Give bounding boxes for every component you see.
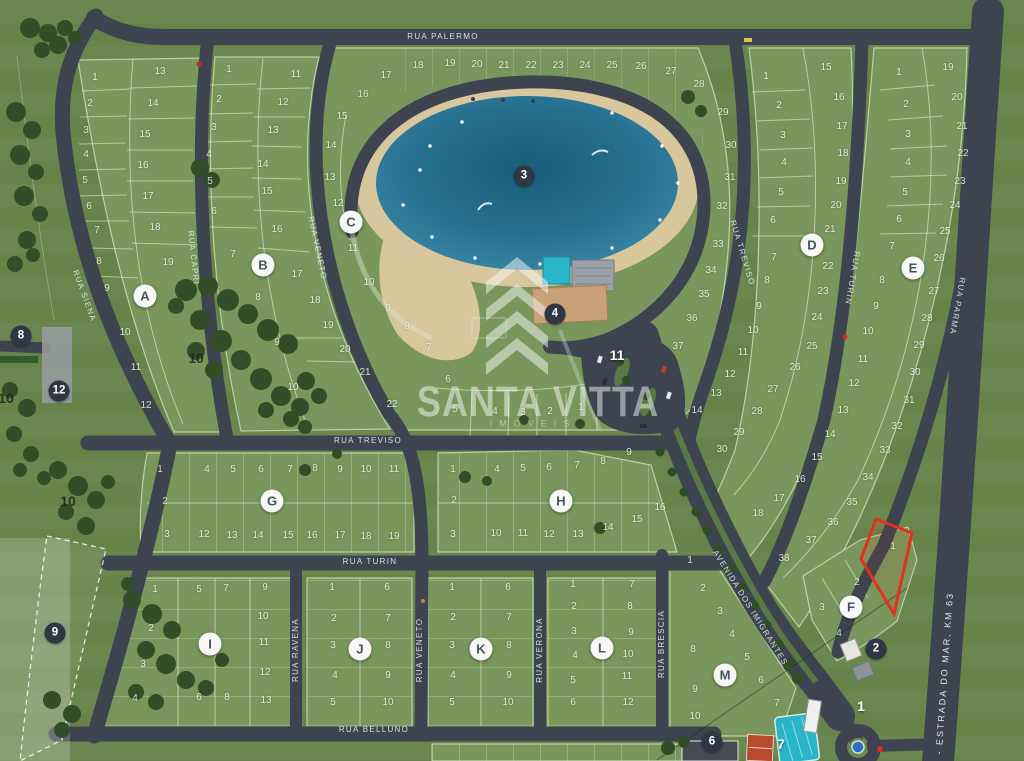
block-marker-M[interactable]: M	[714, 664, 737, 687]
lot-number: 6	[758, 676, 764, 686]
lot-number: 15	[820, 63, 831, 73]
lot-number: 4	[729, 630, 735, 640]
lot-number: 19	[388, 532, 399, 542]
lot-number: 11	[389, 465, 399, 475]
lot-number: 15	[282, 531, 293, 541]
lot-number: 10	[363, 278, 374, 288]
lot-number: 25	[806, 342, 817, 352]
poi-marker-7[interactable]: 7	[777, 737, 785, 751]
lot-number: 38	[778, 554, 789, 564]
lot-number: 7	[287, 465, 293, 475]
lot-number: 2	[148, 624, 154, 634]
lot-number: 5	[449, 698, 455, 708]
lot-number: 29	[733, 428, 744, 438]
lot-number: 1	[687, 556, 693, 566]
lot-number: 36	[686, 314, 697, 324]
lot-number: 10	[119, 328, 130, 338]
lot-number: 12	[277, 98, 288, 108]
lot-number: 11	[518, 529, 528, 539]
lot-number: 14	[824, 430, 835, 440]
lot-number: 3	[450, 530, 456, 540]
lot-number: 3	[520, 408, 526, 418]
lot-number: 4	[450, 671, 456, 681]
lot-number: 37	[672, 342, 683, 352]
lot-number: 5	[902, 188, 908, 198]
labels-layer: RUA PALERMORUA SIENARUA CAPRIRUA VENETOR…	[0, 0, 1024, 761]
lot-number: 9	[756, 302, 762, 312]
lot-number: 3	[571, 627, 577, 637]
lot-number: 18	[752, 509, 763, 519]
lot-number: 7	[223, 584, 229, 594]
block-marker-A[interactable]: A	[134, 285, 157, 308]
street-label: RUA PALERMO	[407, 33, 479, 41]
lot-number: 9	[506, 671, 512, 681]
lot-number: 28	[921, 314, 932, 324]
lot-number: 19	[322, 321, 333, 331]
lot-number: 8	[404, 322, 410, 332]
lot-number: 5	[82, 176, 88, 186]
lot-number: 31	[724, 173, 735, 183]
block-marker-B[interactable]: B	[252, 254, 275, 277]
lot-number: 12	[332, 199, 343, 209]
lot-number: 4	[83, 150, 89, 160]
lot-number: 17	[836, 122, 847, 132]
lot-number: 13	[324, 173, 335, 183]
lot-number: 12	[140, 401, 151, 411]
lot-number: 15	[631, 515, 642, 525]
lot-number: 20	[830, 201, 841, 211]
lot-number: 10	[689, 712, 700, 722]
lot-number: 24	[811, 313, 822, 323]
lot-number: 6	[258, 465, 264, 475]
lot-number: 1	[890, 542, 896, 552]
lot-number: 10	[490, 529, 501, 539]
lot-number: 2	[451, 496, 457, 506]
lot-number: 30	[909, 368, 920, 378]
lot-number: 17	[773, 494, 784, 504]
lot-number: 1	[449, 583, 455, 593]
lot-number: 22	[386, 400, 397, 410]
lot-number: 12	[622, 698, 633, 708]
poi-marker-1[interactable]: 1	[857, 699, 865, 713]
lot-number: 10	[287, 383, 298, 393]
street-label: RUA CAPRI	[186, 230, 200, 285]
lot-number: 30	[716, 445, 727, 455]
lot-number: 25	[939, 227, 950, 237]
lot-number: 17	[380, 71, 391, 81]
lot-number: 26	[789, 363, 800, 373]
lot-number: 11	[622, 672, 632, 682]
lot-number: 15	[139, 130, 150, 140]
lot-number: 6	[770, 216, 776, 226]
lot-number: 20	[951, 93, 962, 103]
lot-number: 22	[822, 262, 833, 272]
lot-number: 35	[698, 290, 709, 300]
lot-number: 1	[570, 580, 576, 590]
poi-marker-6[interactable]: 6	[702, 732, 723, 753]
lot-number: 5	[196, 585, 202, 595]
lot-number: 2	[162, 497, 168, 507]
lot-number: 2	[547, 407, 553, 417]
lot-number: 21	[498, 61, 509, 71]
lot-number: 9	[873, 302, 879, 312]
lot-number: 5	[452, 405, 458, 415]
lot-number: 19	[444, 59, 455, 69]
lot-number: 33	[712, 240, 723, 250]
street-label: RUA TURIN	[843, 250, 860, 305]
street-label: RUA VERONA	[536, 617, 544, 682]
lot-number: 25	[606, 61, 617, 71]
lot-number: 31	[903, 396, 914, 406]
lot-number: 32	[891, 422, 902, 432]
lot-number: 14	[252, 531, 263, 541]
lot-number: 4	[781, 158, 787, 168]
lot-number: 13	[837, 406, 848, 416]
lot-number: 16	[306, 531, 317, 541]
lot-number: 7	[94, 226, 100, 236]
block-marker-D[interactable]: D	[801, 234, 824, 257]
block-marker-L[interactable]: L	[591, 637, 614, 660]
block-marker-K[interactable]: K	[470, 638, 493, 661]
lot-number: 28	[751, 407, 762, 417]
lot-number: 21	[359, 368, 370, 378]
poi-marker-4[interactable]: 4	[545, 304, 566, 325]
lot-number: 5	[520, 464, 526, 474]
street-label: RUA VENETO	[416, 618, 424, 682]
lot-number: 4	[572, 651, 578, 661]
lot-number: 12	[198, 530, 209, 540]
lot-number: 1	[450, 465, 456, 475]
block-marker-C[interactable]: C	[340, 211, 363, 234]
lot-number: 17	[291, 270, 302, 280]
lot-number: 26	[933, 254, 944, 264]
lot-number: 18	[360, 532, 371, 542]
street-label: RUA PARMA	[948, 277, 966, 336]
lot-number: 5	[207, 177, 213, 187]
lot-number: 14	[147, 99, 158, 109]
lot-number: 7	[629, 580, 635, 590]
lot-number: 11	[348, 244, 358, 254]
lot-number: 23	[552, 61, 563, 71]
street-label: 389 - ESTRADA DO MAR, KM 63	[933, 592, 955, 761]
poi-marker-3[interactable]: 3	[514, 166, 535, 187]
lot-number: 27	[665, 67, 676, 77]
lot-number: 8	[385, 641, 391, 651]
lot-number: 9	[692, 685, 698, 695]
lot-number: 13	[154, 67, 165, 77]
lot-number: 24	[949, 201, 960, 211]
lot-number: 34	[862, 473, 873, 483]
lot-number: 7	[774, 699, 780, 709]
lot-number: 6	[211, 207, 217, 217]
lot-number: 3	[905, 130, 911, 140]
lot-number: 3	[83, 126, 89, 136]
site-plan-map: SANTA VITTA IMÓVEIS RUA PALERMORUA SIENA…	[0, 0, 1024, 761]
lot-number: 3	[211, 123, 217, 133]
lot-number: 12	[259, 668, 270, 678]
lot-number: 1	[92, 73, 98, 83]
block-marker-G[interactable]: G	[261, 490, 284, 513]
lot-number: 10	[360, 465, 371, 475]
lot-number: 12	[848, 379, 859, 389]
lot-number: 26	[635, 62, 646, 72]
lot-number: 3	[164, 530, 170, 540]
poi-marker-11[interactable]: 11	[610, 348, 625, 362]
lot-number: 33	[879, 446, 890, 456]
lot-number: 2	[331, 614, 337, 624]
lot-number: 11	[738, 348, 748, 358]
lot-number: 9	[626, 448, 632, 458]
lot-number: 4	[905, 158, 911, 168]
lot-number: 10	[747, 326, 758, 336]
lot-number: 6	[896, 215, 902, 225]
lot-number: 10	[502, 698, 513, 708]
lot-number: 4	[332, 671, 338, 681]
block-marker-J[interactable]: J	[349, 638, 372, 661]
block-marker-I[interactable]: I	[199, 633, 222, 656]
lot-number: 19	[942, 63, 953, 73]
lot-number: 16	[357, 90, 368, 100]
lot-number: 11	[131, 363, 141, 373]
block-marker-H[interactable]: H	[550, 490, 573, 513]
lot-number: 8	[879, 276, 885, 286]
street-label: RUA TREVISO	[334, 437, 402, 445]
lot-number: 2	[776, 101, 782, 111]
lot-number: 8	[764, 276, 770, 286]
lot-number: 1	[157, 465, 163, 475]
lot-number: 6	[546, 463, 552, 473]
street-label: RUA BRESCIA	[658, 610, 666, 678]
lot-number: 21	[824, 225, 835, 235]
lot-number: 1	[578, 403, 584, 413]
block-marker-F[interactable]: F	[840, 596, 863, 619]
lot-number: 14	[325, 141, 336, 151]
lot-number: 35	[846, 498, 857, 508]
lot-number: 10	[257, 612, 268, 622]
lot-number: 7	[574, 461, 580, 471]
lot-number: 3	[449, 641, 455, 651]
lot-number: 5	[330, 698, 336, 708]
lot-number: 24	[579, 61, 590, 71]
lot-number: 23	[954, 177, 965, 187]
lot-number: 6	[570, 698, 576, 708]
area-label: 10	[60, 494, 76, 508]
lot-number: 14	[257, 160, 268, 170]
lot-number: 1	[226, 65, 232, 75]
lot-number: 4	[206, 150, 212, 160]
lot-number: 1	[896, 68, 902, 78]
lot-number: 4	[204, 465, 210, 475]
lot-number: 9	[337, 465, 343, 475]
lot-number: 5	[744, 653, 750, 663]
lot-number: 2	[450, 613, 456, 623]
lot-number: 2	[903, 100, 909, 110]
lot-number: 13	[260, 696, 271, 706]
street-label: RUA BELLUNO	[339, 726, 409, 734]
lot-number: 5	[778, 188, 784, 198]
lot-number: 34	[705, 266, 716, 276]
lot-number: 20	[339, 345, 350, 355]
lot-number: 14	[602, 523, 613, 533]
block-marker-E[interactable]: E	[902, 257, 925, 280]
lot-number: 17	[142, 192, 153, 202]
lot-number: 10	[622, 650, 633, 660]
lot-number: 10	[382, 698, 393, 708]
lot-number: 5	[570, 676, 576, 686]
lot-number: 29	[913, 341, 924, 351]
street-label: RUA RAVENA	[292, 618, 300, 682]
poi-marker-2[interactable]: 2	[866, 639, 887, 660]
lot-number: 7	[506, 613, 512, 623]
lot-number: 13	[572, 530, 583, 540]
lot-number: 2	[216, 95, 222, 105]
lot-number: 9	[262, 583, 268, 593]
lot-number: 9	[385, 671, 391, 681]
lot-number: 3	[819, 603, 825, 613]
lot-number: 22	[957, 149, 968, 159]
lot-number: 11	[259, 638, 269, 648]
lot-number: 19	[162, 258, 173, 268]
lot-number: 6	[445, 375, 451, 385]
lot-number: 11	[858, 355, 868, 365]
lot-number: 16	[271, 225, 282, 235]
lot-number: 18	[309, 296, 320, 306]
lot-number: 13	[267, 126, 278, 136]
lot-number: 18	[837, 149, 848, 159]
lot-number: 1	[329, 583, 335, 593]
lot-number: 8	[600, 457, 606, 467]
lot-number: 12	[543, 530, 554, 540]
lot-number: 9	[628, 628, 634, 638]
lot-number: 3	[780, 131, 786, 141]
lot-number: 5	[230, 465, 236, 475]
street-label: RUA TURIN	[343, 558, 398, 566]
lot-number: 6	[196, 693, 202, 703]
lot-number: 27	[767, 385, 778, 395]
lot-number: 1	[763, 72, 769, 82]
lot-number: 32	[716, 202, 727, 212]
lot-number: 17	[334, 531, 345, 541]
lot-number: 12	[724, 370, 735, 380]
lot-number: 3	[717, 607, 723, 617]
lot-number: 16	[794, 475, 805, 485]
lot-number: 23	[817, 287, 828, 297]
street-label: RUA TREVISO	[728, 219, 756, 286]
lot-number: 16	[654, 503, 665, 513]
lot-number: 11	[291, 70, 301, 80]
lot-number: 7	[230, 250, 236, 260]
lot-number: 7	[385, 614, 391, 624]
lot-number: 6	[384, 583, 390, 593]
lot-number: 22	[525, 61, 536, 71]
lot-number: 2	[571, 602, 577, 612]
lot-number: 1	[152, 585, 158, 595]
lot-number: 15	[811, 453, 822, 463]
lot-number: 3	[330, 641, 336, 651]
lot-number: 13	[710, 389, 721, 399]
lot-number: 2	[700, 584, 706, 594]
lot-number: 9	[104, 284, 110, 294]
lot-number: 36	[827, 518, 838, 528]
lot-number: 16	[833, 93, 844, 103]
lot-number: 7	[771, 253, 777, 263]
lot-number: 18	[412, 61, 423, 71]
poi-marker-12[interactable]: 12	[49, 381, 70, 402]
lot-number: 6	[86, 202, 92, 212]
area-label: 10	[0, 391, 14, 405]
lot-number: 8	[224, 693, 230, 703]
lot-number: 8	[506, 641, 512, 651]
lot-number: 20	[471, 60, 482, 70]
lot-number: 4	[492, 407, 498, 417]
lot-number: 7	[889, 242, 895, 252]
lot-number: 8	[312, 464, 318, 474]
lot-number: 8	[627, 602, 633, 612]
lot-number: 4	[494, 465, 500, 475]
lot-number: 4	[836, 629, 842, 639]
lot-number: 9	[385, 304, 391, 314]
lot-number: 15	[261, 187, 272, 197]
lot-number: 30	[725, 141, 736, 151]
lot-number: 13	[226, 531, 237, 541]
lot-number: 27	[928, 287, 939, 297]
lot-number: 8	[255, 293, 261, 303]
lot-number: 21	[956, 122, 967, 132]
lot-number: 18	[149, 223, 160, 233]
poi-marker-9[interactable]: 9	[45, 623, 66, 644]
street-label: RUA SIENA	[71, 269, 97, 323]
lot-number: 16	[137, 161, 148, 171]
lot-number: 4	[132, 694, 138, 704]
lot-number: 6	[505, 583, 511, 593]
lot-number: 37	[805, 536, 816, 546]
lot-number: 3	[140, 660, 146, 670]
lot-number: 28	[693, 80, 704, 90]
lot-number: 14	[691, 406, 702, 416]
street-label: RUA VENETO	[306, 216, 327, 281]
lot-number: 8	[690, 645, 696, 655]
lot-number: 2	[87, 99, 93, 109]
lot-number: 19	[835, 177, 846, 187]
lot-number: 10	[862, 327, 873, 337]
area-label: 10	[188, 351, 204, 365]
lot-number: 9	[274, 338, 280, 348]
poi-marker-8[interactable]: 8	[11, 326, 32, 347]
lot-number: 8	[96, 257, 102, 267]
lot-number: 29	[717, 108, 728, 118]
lot-number: 15	[336, 112, 347, 122]
lot-number: 2	[854, 578, 860, 588]
lot-number: 7	[426, 343, 432, 353]
